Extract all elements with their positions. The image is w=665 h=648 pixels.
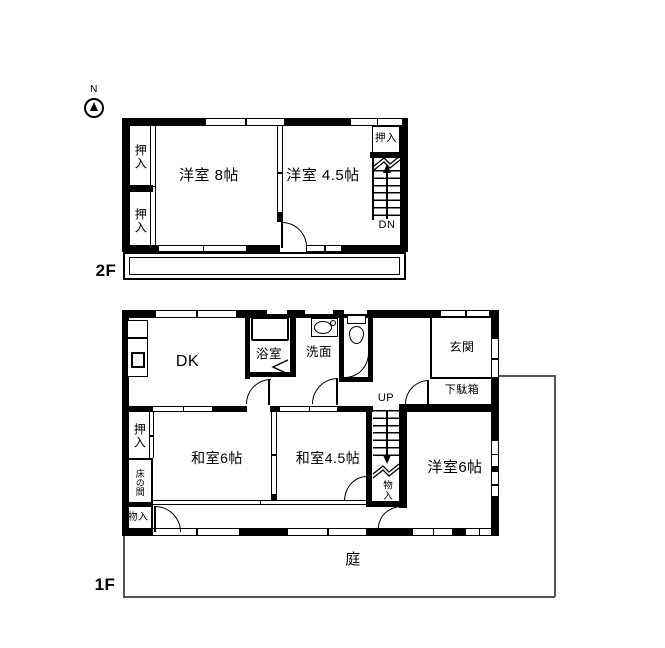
garden-boundary-line: [123, 536, 125, 597]
sliding-door: [153, 406, 212, 412]
washbasin-faucet-icon: [330, 320, 336, 326]
door-arc: [155, 506, 181, 532]
room-label-dk: DK: [160, 353, 215, 371]
door-leaf: [268, 379, 270, 405]
room-label-closet-1f: 押入: [128, 414, 150, 458]
sliding-door-partition: [271, 412, 277, 496]
door-arc: [344, 476, 367, 501]
door-arc: [345, 353, 369, 378]
door-arc: [378, 506, 402, 528]
balcony: [123, 252, 406, 280]
stairs-dn-label: DN: [373, 219, 401, 232]
room-label-closet-bottom: 押入: [129, 197, 151, 245]
door-arc: [405, 380, 429, 404]
stair-arrow-shaft: [386, 411, 388, 457]
window: [205, 118, 285, 126]
garden-boundary-line: [123, 596, 555, 598]
sliding-door: [280, 406, 337, 412]
floor-plan: N 押入 押入 洋室 8帖 洋室 4.5帖 押入 DN 2F: [0, 0, 665, 648]
entrance-door-opening: [491, 338, 499, 378]
floor-label-1f: 1F: [91, 575, 119, 595]
balcony-inner-line: [129, 257, 400, 275]
toilet-tank-icon: [347, 315, 366, 324]
room-label-washroom: 洗面: [294, 345, 344, 360]
washbasin-icon: [311, 318, 338, 337]
room-label-washitsu6: 和室6帖: [179, 450, 255, 467]
kitchen-counter: [127, 320, 148, 377]
garden-label: 庭: [340, 551, 366, 569]
sliding-door: [153, 500, 366, 505]
wall-thin: [125, 458, 153, 460]
bathtub-icon: [251, 317, 289, 341]
wall: [122, 502, 153, 507]
compass-arrow-icon: [90, 102, 98, 111]
room-label-storage-left: 物入: [124, 511, 152, 525]
stairs-up-label: UP: [372, 393, 400, 405]
door-leaf: [281, 222, 283, 248]
bath-folding-door: [270, 359, 290, 375]
wall: [400, 118, 408, 252]
room-label-shoe-cabinet: 下駄箱: [434, 384, 490, 398]
window-high: [267, 310, 287, 315]
stair-arrow-shaft: [386, 172, 388, 219]
room-label-closet-top: 押入: [129, 133, 151, 181]
wall: [407, 404, 499, 412]
stair-arrow-up-icon: [383, 164, 391, 173]
room-label-storage-stairs: 物入: [377, 477, 395, 503]
window: [465, 528, 492, 536]
room-label-western45: 洋室 4.5帖: [273, 167, 373, 185]
wall-thin: [430, 318, 432, 379]
door-leaf: [154, 506, 156, 532]
wall: [368, 310, 373, 382]
door-leaf: [427, 380, 429, 405]
window: [440, 310, 490, 317]
toilet-bowl-icon: [349, 326, 364, 344]
window: [412, 528, 453, 536]
room-label-washitsu45: 和室4.5帖: [286, 450, 370, 467]
garden-boundary-line: [554, 375, 556, 597]
window: [155, 310, 237, 318]
wall-thin: [151, 460, 153, 502]
room-label-entrance: 玄関: [436, 340, 488, 355]
garden-boundary-line: [499, 375, 555, 377]
kitchen-sink-icon: [131, 352, 145, 368]
door-leaf: [336, 378, 338, 405]
wall: [122, 185, 153, 192]
room-label-tokonoma: 床の間: [130, 463, 148, 501]
compass-north-label: N: [86, 84, 102, 96]
room-label-closet-right: 押入: [373, 131, 399, 147]
room-label-yoshitsu6: 洋室6帖: [417, 459, 493, 477]
wall: [399, 404, 407, 508]
wall: [212, 406, 247, 412]
wall-thin: [432, 377, 491, 379]
window: [287, 528, 367, 536]
room-label-western8: 洋室 8帖: [159, 167, 259, 185]
window: [158, 245, 247, 252]
wall: [337, 406, 373, 412]
window: [306, 245, 342, 252]
window-high: [305, 310, 333, 315]
floor-label-2f: 2F: [92, 261, 120, 281]
door-arc: [312, 378, 338, 404]
wall: [277, 212, 283, 222]
window: [350, 118, 403, 126]
door-arc: [282, 222, 307, 247]
kitchen-counter-divider: [127, 337, 148, 339]
